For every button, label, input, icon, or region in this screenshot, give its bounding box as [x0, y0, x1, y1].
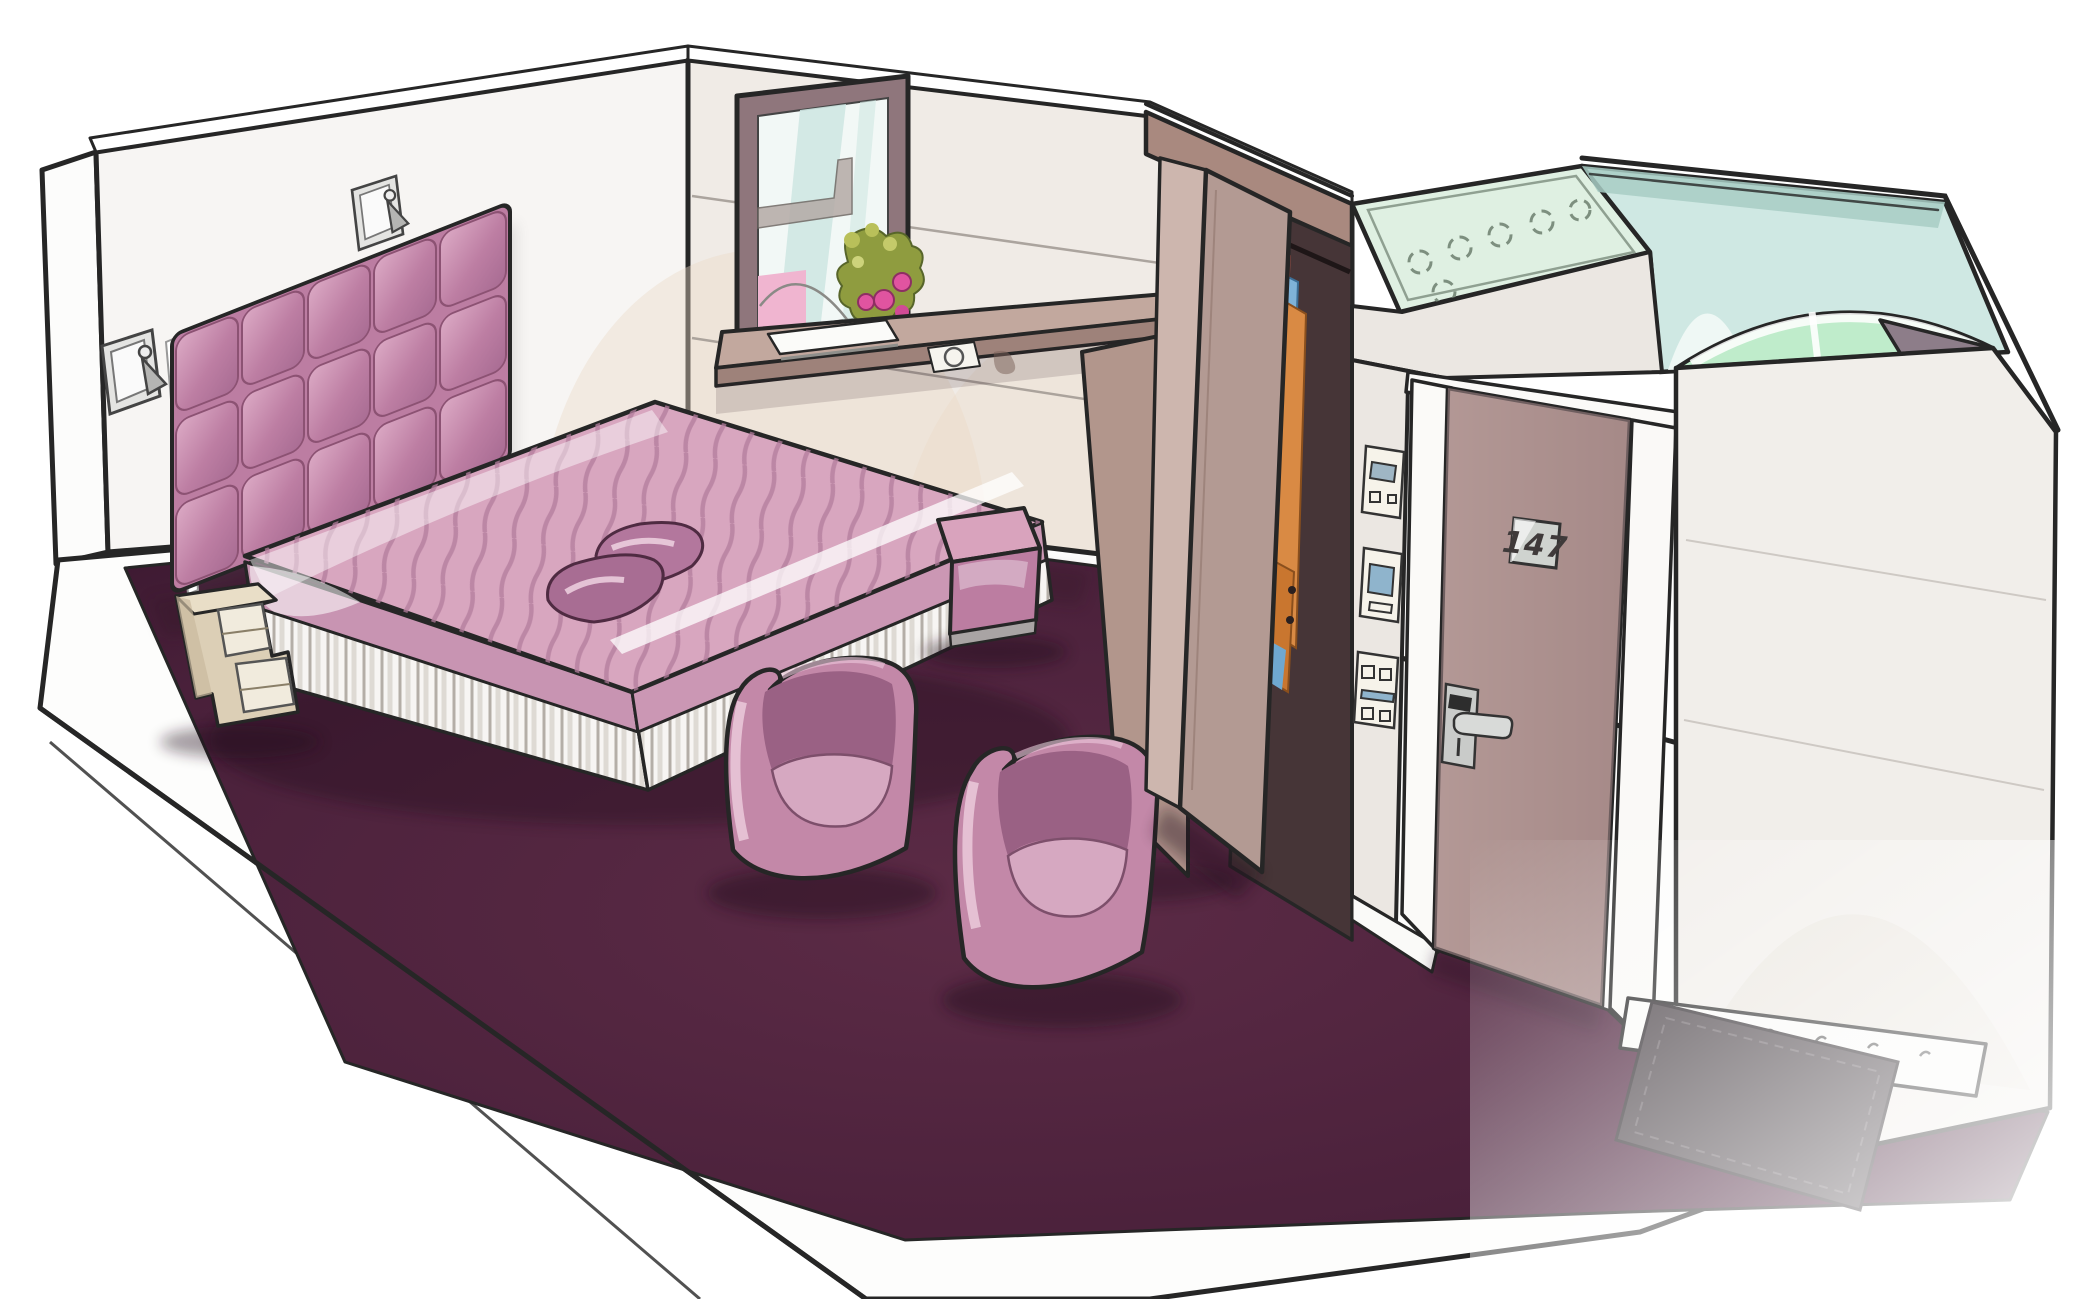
nightstand-shadow: [160, 726, 320, 758]
panel-slot: [1370, 462, 1396, 482]
rose: [893, 273, 911, 291]
tub-chair-left: [707, 658, 937, 919]
switch-panel-2: [1360, 548, 1402, 622]
switch-panel-3: [1354, 652, 1398, 728]
dial-plate: [928, 342, 980, 372]
nightstand-cubby-upper: [218, 604, 270, 656]
bud: [844, 232, 860, 248]
handle-lever: [1454, 713, 1512, 738]
wardrobe: [1146, 112, 1352, 940]
hanger-knob: [1286, 616, 1294, 624]
panel-screen: [1368, 564, 1394, 596]
panel-plate: [1362, 446, 1404, 518]
bud: [865, 223, 879, 237]
bud: [883, 237, 897, 251]
hanger-knob: [1288, 586, 1296, 594]
handle-stem: [1458, 738, 1459, 756]
door-number-plaque: 147: [1500, 518, 1569, 568]
panel-plate: [1354, 652, 1398, 728]
room-sketch: 147: [0, 0, 2100, 1299]
rose: [874, 290, 894, 310]
rose: [858, 294, 874, 310]
illustration-canvas: 147: [0, 0, 2100, 1299]
door-number-text: 147: [1500, 525, 1569, 567]
fade-bottom-right: [1470, 840, 2100, 1299]
bud: [852, 256, 864, 268]
switch-panel-1: [1362, 446, 1404, 518]
